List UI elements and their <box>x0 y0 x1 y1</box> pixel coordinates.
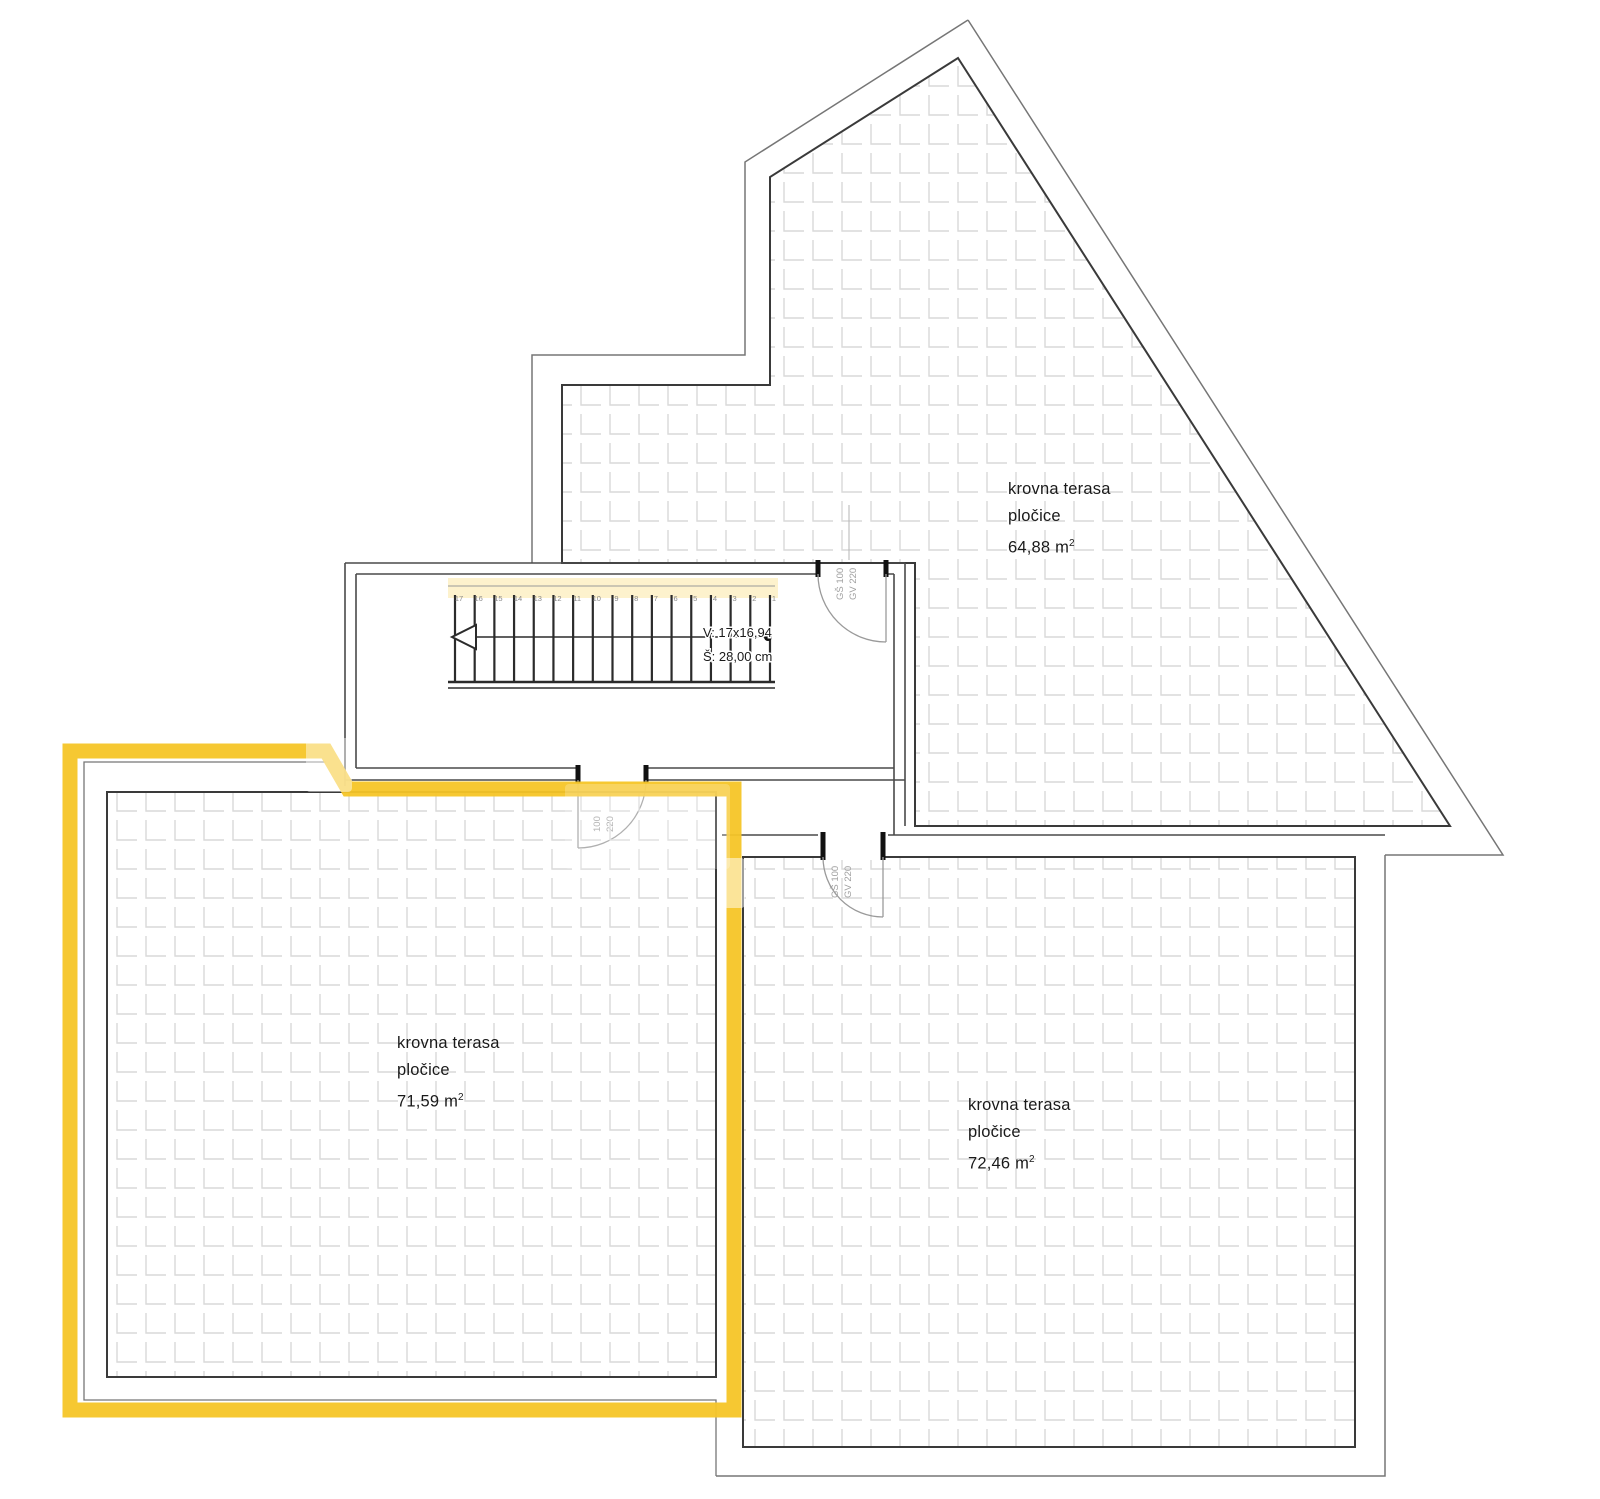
stair-step-number: 14 <box>514 594 522 603</box>
terrace-bottom-label: krovna terasa pločice 72,46 m2 <box>968 1092 1071 1178</box>
floor-plan-canvas: 1716151413121110987654321 V: 17x16,94 Š:… <box>0 0 1600 1499</box>
terrace-top-area: 64,88 m2 <box>1008 530 1111 562</box>
stair-step-number: 3 <box>733 594 737 603</box>
terrace-top-label: krovna terasa pločice 64,88 m2 <box>1008 476 1111 562</box>
bottom-terrace-door-gap <box>824 851 882 860</box>
terrace-left-finish: pločice <box>397 1057 500 1084</box>
door-bottom-height-label: GV 220 <box>843 866 854 898</box>
stair-flight: 1716151413121110987654321 V: 17x16,94 Š:… <box>448 578 778 688</box>
stair-step-number: 9 <box>614 594 618 603</box>
stair-step-number: 12 <box>553 594 561 603</box>
stair-step-number: 17 <box>455 594 463 603</box>
top-terrace-tiled-area <box>562 58 1450 826</box>
stair-step-number: 13 <box>534 594 542 603</box>
terrace-left-name: krovna terasa <box>397 1030 500 1057</box>
terrace-bottom-finish: pločice <box>968 1119 1071 1146</box>
stair-step-number: 6 <box>673 594 677 603</box>
stair-step-number: 8 <box>634 594 638 603</box>
terrace-left-area: 71,59 m2 <box>397 1084 500 1116</box>
stair-step-number: 1 <box>772 594 776 603</box>
stairs-riser-dimension: V: 17x16,94 <box>703 625 772 640</box>
stairs-going-dimension: Š: 28,00 cm <box>703 649 772 664</box>
watermark-artifact <box>565 784 730 869</box>
watermark-artifact <box>306 738 352 792</box>
stair-step-number: 4 <box>713 594 717 603</box>
stair-step-number: 10 <box>593 594 601 603</box>
stair-step-number: 5 <box>693 594 697 603</box>
terrace-bottom-name: krovna terasa <box>968 1092 1071 1119</box>
door-top-width-label: GŠ 100 <box>835 568 846 600</box>
terrace-top-finish: pločice <box>1008 503 1111 530</box>
door-top-height-label: GV 220 <box>848 568 859 600</box>
terrace-bottom-area: 72,46 m2 <box>968 1146 1071 1178</box>
door-bottom-width-label: GŠ 100 <box>830 866 841 898</box>
stair-step-number: 7 <box>654 594 658 603</box>
stair-step-number: 11 <box>573 594 581 603</box>
stair-step-number: 15 <box>494 594 502 603</box>
terrace-left-label: krovna terasa pločice 71,59 m2 <box>397 1030 500 1116</box>
terrace-top-name: krovna terasa <box>1008 476 1111 503</box>
stair-step-number: 16 <box>475 594 483 603</box>
stair-step-number: 2 <box>752 594 756 603</box>
floor-plan-drawing: 1716151413121110987654321 V: 17x16,94 Š:… <box>0 0 1600 1499</box>
